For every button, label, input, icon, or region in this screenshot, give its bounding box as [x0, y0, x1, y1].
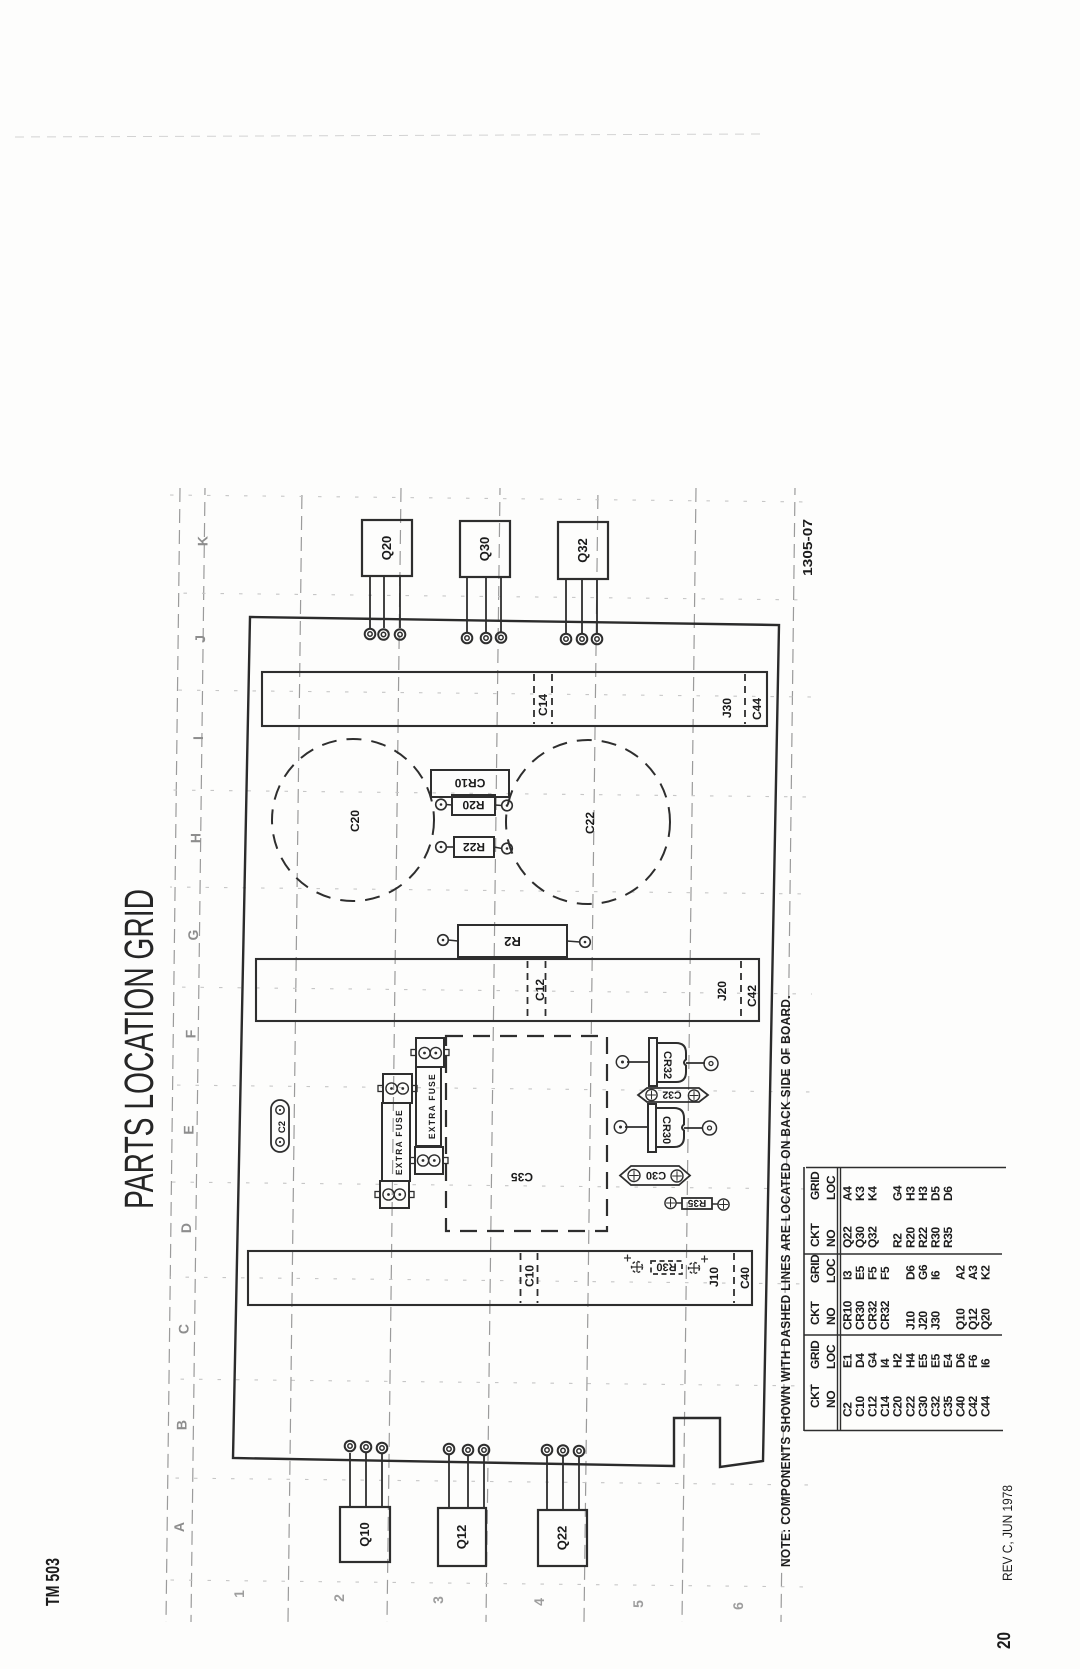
- svg-text:LOC: LOC: [824, 1344, 838, 1369]
- svg-text:G: G: [185, 929, 201, 940]
- svg-text:B: B: [173, 1420, 189, 1430]
- svg-text:PARTS LOCATION GRID: PARTS LOCATION GRID: [116, 889, 162, 1209]
- svg-text:C42: C42: [745, 985, 759, 1007]
- svg-text:1: 1: [231, 1590, 247, 1598]
- svg-text:EXTRA FUSE: EXTRA FUSE: [427, 1073, 437, 1139]
- svg-text:GRID: GRID: [808, 1254, 822, 1283]
- svg-text:TM 503: TM 503: [43, 1558, 64, 1606]
- svg-text:F: F: [183, 1029, 199, 1038]
- svg-text:6: 6: [730, 1602, 746, 1610]
- svg-text:CKT: CKT: [808, 1383, 822, 1408]
- svg-text:LOC: LOC: [824, 1175, 838, 1200]
- svg-text:R20: R20: [462, 798, 484, 812]
- svg-text:3: 3: [430, 1596, 446, 1604]
- svg-text:J30: J30: [720, 698, 734, 718]
- svg-text:A: A: [171, 1522, 187, 1532]
- svg-text:Q22: Q22: [555, 1526, 570, 1551]
- svg-text:E: E: [180, 1125, 196, 1134]
- svg-text:H: H: [187, 833, 203, 843]
- svg-text:J30: J30: [928, 1310, 942, 1330]
- svg-text:J10: J10: [707, 1267, 721, 1287]
- svg-text:F5: F5: [878, 1266, 892, 1280]
- svg-text:NO: NO: [824, 1391, 838, 1408]
- svg-text:CR10: CR10: [454, 776, 485, 790]
- svg-text:R22: R22: [463, 840, 485, 854]
- svg-text:C30: C30: [646, 1169, 666, 1181]
- svg-text:CR30: CR30: [660, 1116, 672, 1144]
- svg-text:CKT: CKT: [808, 1222, 822, 1247]
- svg-text:C32: C32: [662, 1089, 681, 1101]
- svg-text:Q20: Q20: [379, 536, 394, 561]
- svg-text:LOC: LOC: [824, 1258, 838, 1283]
- svg-text:20: 20: [993, 1632, 1014, 1649]
- svg-text:D6: D6: [941, 1186, 955, 1201]
- svg-text:R35: R35: [941, 1226, 955, 1248]
- svg-text:5: 5: [630, 1600, 646, 1608]
- svg-text:D: D: [178, 1223, 194, 1233]
- svg-text:Q12: Q12: [454, 1525, 469, 1550]
- svg-text:J: J: [192, 635, 208, 643]
- svg-text:C10: C10: [523, 1265, 537, 1287]
- svg-text:C2: C2: [277, 1121, 288, 1133]
- svg-text:CR32: CR32: [661, 1051, 673, 1079]
- svg-text:CKT: CKT: [808, 1300, 822, 1325]
- svg-text:1305-07: 1305-07: [800, 519, 815, 576]
- svg-text:Q32: Q32: [575, 538, 590, 563]
- svg-text:R2: R2: [504, 934, 521, 949]
- svg-text:I6: I6: [928, 1270, 942, 1280]
- svg-text:J20: J20: [715, 981, 729, 1001]
- svg-text:K2: K2: [979, 1265, 993, 1280]
- svg-text:4: 4: [531, 1598, 547, 1606]
- svg-text:I6: I6: [979, 1358, 993, 1368]
- svg-text:C: C: [176, 1324, 192, 1334]
- svg-text:C22: C22: [583, 812, 597, 834]
- svg-text:C44: C44: [750, 698, 764, 720]
- svg-text:K4: K4: [866, 1186, 880, 1201]
- svg-text:R30: R30: [656, 1261, 676, 1273]
- svg-text:EXTRA FUSE: EXTRA FUSE: [394, 1109, 404, 1175]
- svg-text:NO: NO: [824, 1230, 838, 1247]
- svg-text:C12: C12: [533, 979, 547, 1001]
- svg-text:C44: C44: [979, 1395, 993, 1417]
- svg-text:C14: C14: [536, 694, 550, 716]
- svg-text:K: K: [195, 536, 211, 546]
- svg-text:Q30: Q30: [477, 537, 492, 562]
- svg-text:NO: NO: [824, 1308, 838, 1325]
- svg-text:R35: R35: [687, 1197, 706, 1208]
- svg-text:I: I: [190, 736, 206, 740]
- svg-text:C40: C40: [738, 1267, 752, 1289]
- svg-text:CR32: CR32: [878, 1300, 892, 1330]
- svg-text:GRID: GRID: [808, 1340, 822, 1369]
- svg-text:Q20: Q20: [979, 1308, 993, 1330]
- svg-text:C35: C35: [511, 1170, 533, 1184]
- svg-text:REV C, JUN 1978: REV C, JUN 1978: [1000, 1485, 1015, 1581]
- svg-text:2: 2: [331, 1594, 347, 1602]
- svg-text:GRID: GRID: [808, 1171, 822, 1200]
- svg-text:C20: C20: [348, 810, 362, 832]
- svg-text:Q10: Q10: [357, 1522, 372, 1547]
- svg-text:Q32: Q32: [866, 1226, 880, 1248]
- svg-text:NOTE: COMPONENTS SHOWN WITH DA: NOTE: COMPONENTS SHOWN WITH DASHED LINES…: [778, 995, 793, 1567]
